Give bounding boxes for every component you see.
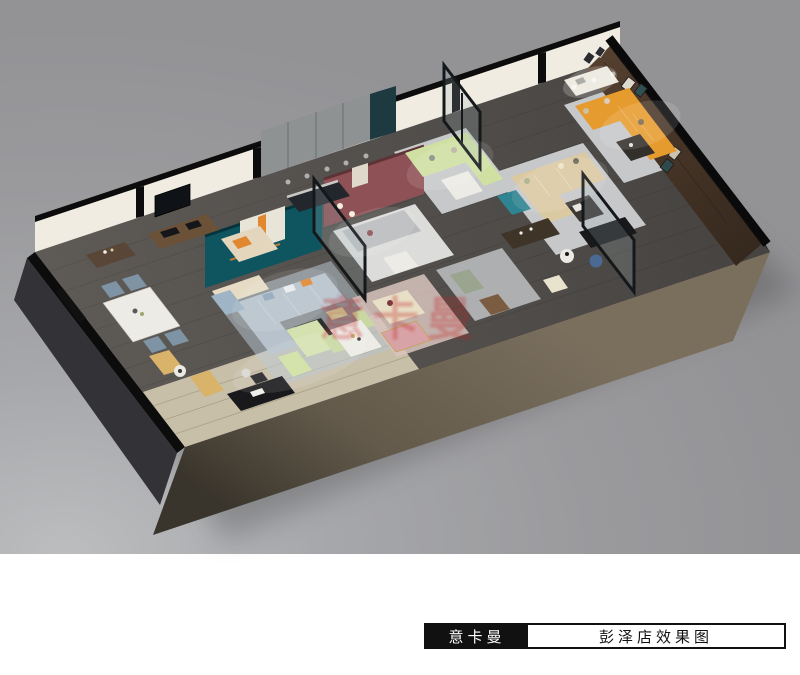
blue-ottoman [590,255,603,268]
pillow [604,98,610,104]
brand-label: 意卡曼 [448,626,505,647]
render-page: 意卡曼 意卡曼 彭泽店效果图 [0,0,800,675]
store-title-label: 彭泽店效果图 [599,626,713,647]
store-title-box: 彭泽店效果图 [528,625,784,647]
brand-box: 意卡曼 [426,625,528,647]
pillow [583,108,589,114]
showroom-floorplan-render: 意卡曼 [0,0,800,675]
white-strip [0,554,800,675]
watermark-text: 意卡曼 [319,292,481,346]
tv-wall-panel [370,86,396,140]
caption-bar: 意卡曼 彭泽店效果图 [424,623,786,649]
